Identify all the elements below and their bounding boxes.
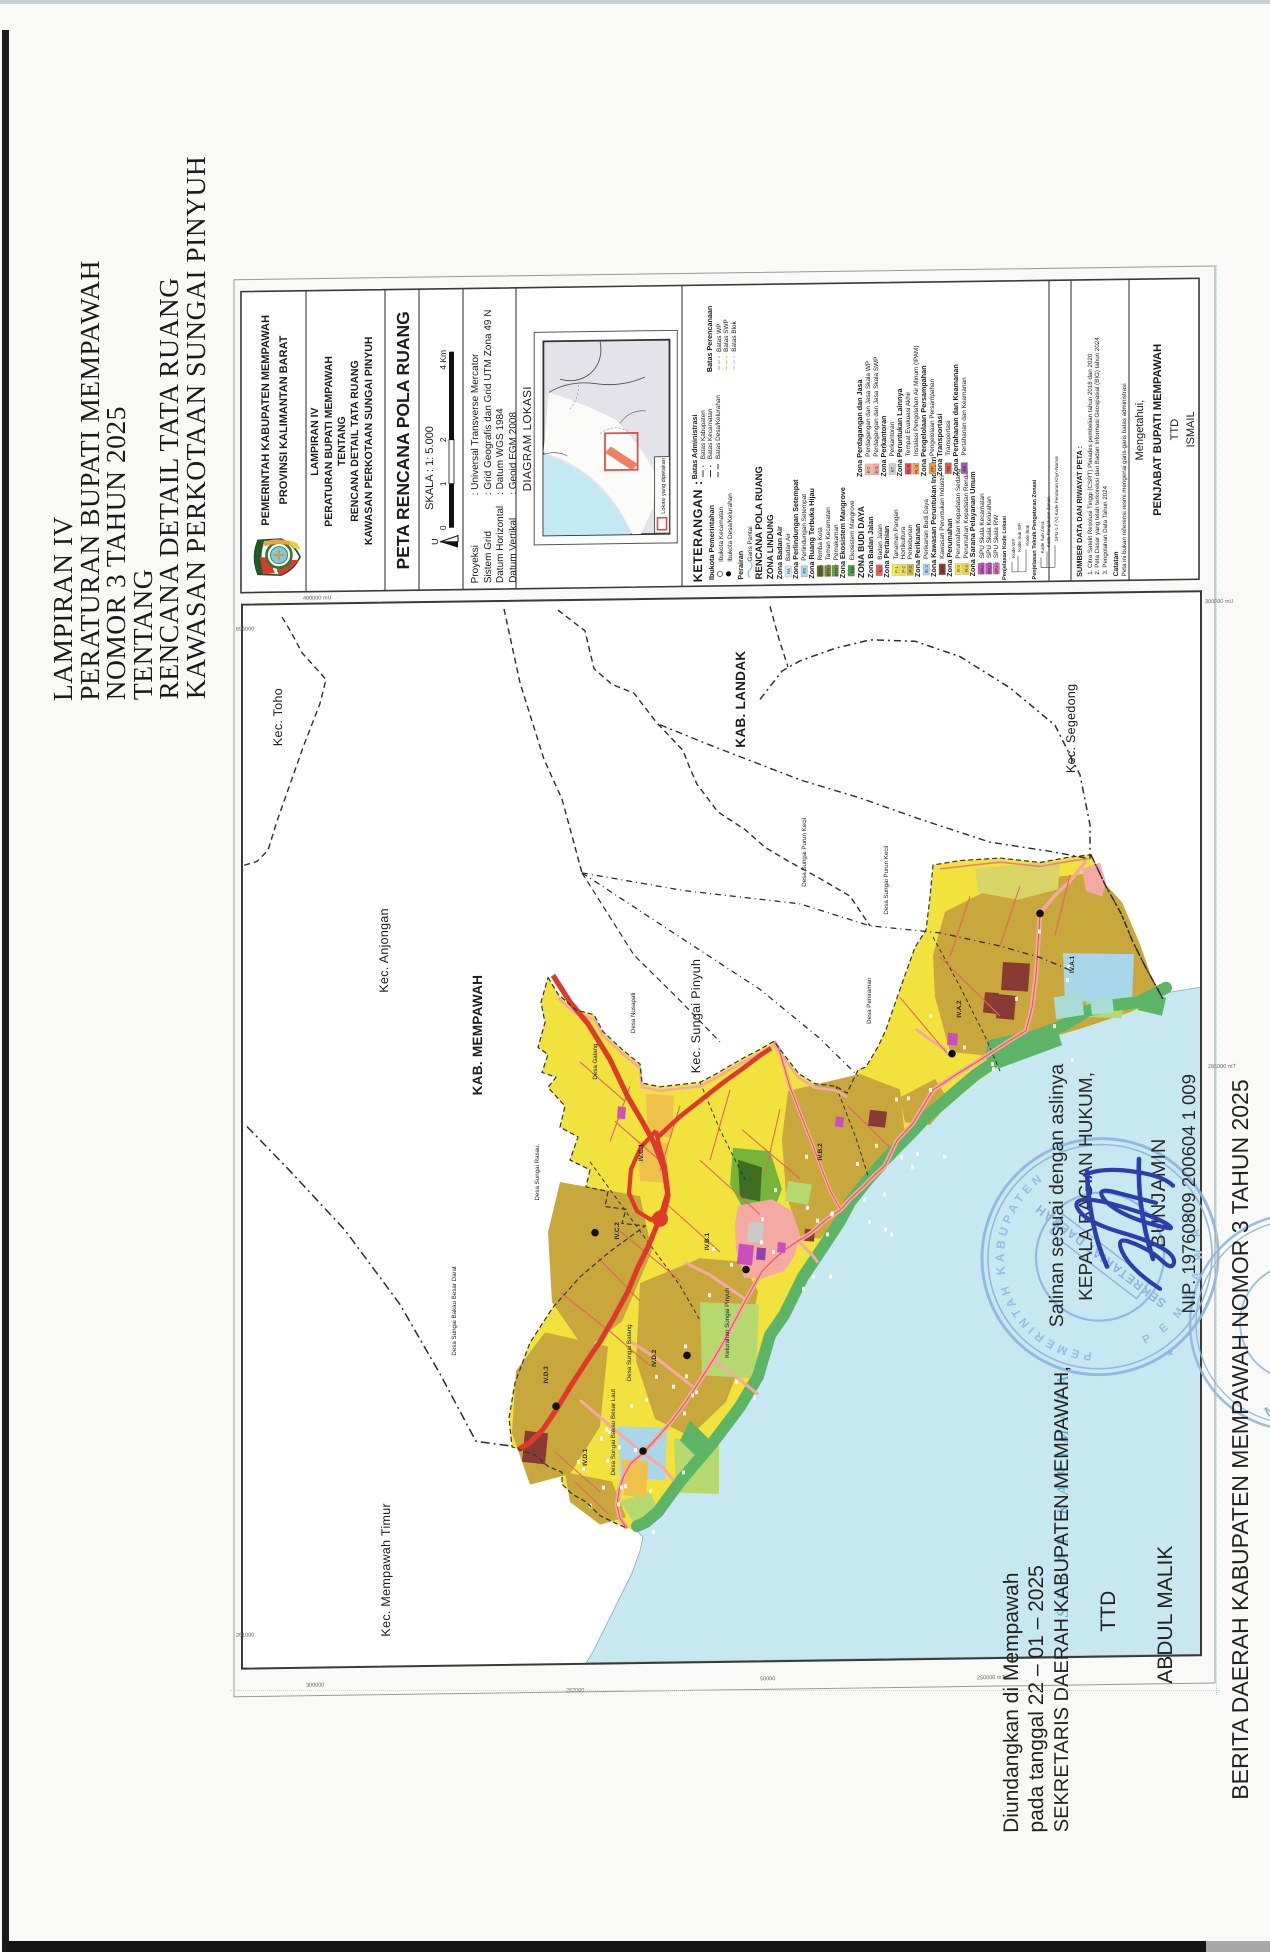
svg-text:Kode WP: Kode WP bbox=[1011, 538, 1016, 557]
svg-text:K-2: K-2 bbox=[866, 466, 871, 473]
svg-text:SPU Skala Kecamatan: SPU Skala Kecamatan bbox=[979, 493, 986, 559]
svg-text:RENCANA POLA RUANG: RENCANA POLA RUANG bbox=[754, 466, 765, 579]
svg-text:Penjelasan Teknik Pengaturan Z: Penjelasan Teknik Pengaturan Zonasi bbox=[1032, 479, 1038, 580]
svg-text:Pertahanan dan Keamanan: Pertahanan dan Keamanan bbox=[961, 377, 968, 456]
svg-text:Kec. Segedong: Kec. Segedong bbox=[1064, 684, 1078, 774]
svg-text:Perdagangan dan Jasa Skala WP: Perdagangan dan Jasa Skala WP bbox=[865, 361, 872, 457]
svg-text:: Datum WGS 1984: : Datum WGS 1984 bbox=[495, 408, 506, 495]
svg-text:Zona Transportasi: Zona Transportasi bbox=[935, 414, 944, 476]
svg-text:R-3: R-3 bbox=[956, 565, 961, 572]
svg-text:Batas Kabupaten: Batas Kabupaten bbox=[700, 410, 707, 460]
svg-text:Desa Peniraman: Desa Peniraman bbox=[866, 977, 873, 1024]
svg-text:261000: 261000 bbox=[236, 1632, 254, 1638]
svg-text:RTH-3: RTH-3 bbox=[826, 564, 831, 577]
svg-text:P-1: P-1 bbox=[894, 566, 899, 573]
svg-text:PL-6: PL-6 bbox=[906, 464, 911, 474]
svg-text:: Geoid EGM 2008: : Geoid EGM 2008 bbox=[508, 411, 519, 494]
svg-text:Batas Administrasi: Batas Administrasi bbox=[690, 414, 699, 479]
svg-text:Zona Pertahanan dan Keamanan: Zona Pertahanan dan Keamanan bbox=[951, 364, 960, 476]
svg-text:KAB. MEMPAWAH: KAB. MEMPAWAH bbox=[470, 975, 485, 1096]
svg-text:U: U bbox=[430, 538, 440, 545]
svg-text:285000 mT: 285000 mT bbox=[1208, 1064, 1236, 1070]
svg-text:PERATURAN BUPATI MEMPAWAH: PERATURAN BUPATI MEMPAWAH bbox=[323, 356, 335, 527]
svg-text:Penjelasan Kode Lokasi: Penjelasan Kode Lokasi bbox=[1002, 515, 1008, 580]
svg-text:SPU-2: SPU-2 bbox=[980, 561, 985, 574]
svg-text:Datum Horizontal: Datum Horizontal bbox=[495, 506, 506, 583]
svg-text:TTD: TTD bbox=[1097, 1591, 1120, 1632]
svg-text:Kode Sub WP: Kode Sub WP bbox=[1017, 523, 1022, 552]
svg-text:Zona Ruang Terbuka Hijau: Zona Ruang Terbuka Hijau bbox=[807, 488, 816, 579]
svg-text:Kec. Mempawah Timur: Kec. Mempawah Timur bbox=[379, 1503, 393, 1637]
svg-text:Garis Pantai: Garis Pantai bbox=[747, 526, 754, 561]
svg-text:PENJABAT BUPATI MEMPAWAH: PENJABAT BUPATI MEMPAWAH bbox=[1152, 344, 1164, 516]
svg-text:PEMERINTAH KABUPATEN MEMPAWAH: PEMERINTAH KABUPATEN MEMPAWAH bbox=[260, 315, 272, 526]
svg-text:Datum Vertikal: Datum Vertikal bbox=[508, 518, 519, 583]
svg-text:2: 2 bbox=[438, 437, 448, 442]
svg-text:Catatan: Catatan bbox=[1113, 551, 1120, 576]
svg-text:Lokasi yang dipetakan: Lokasi yang dipetakan bbox=[661, 458, 667, 514]
svg-text:Zona Badan Air: Zona Badan Air bbox=[775, 526, 784, 579]
svg-text:0: 0 bbox=[438, 525, 448, 530]
svg-text:Desa Sungai Batang: Desa Sungai Batang bbox=[626, 1324, 633, 1381]
svg-text:Taman Kecamatan: Taman Kecamatan bbox=[825, 507, 832, 561]
svg-text:ZONA BUDI DAYA: ZONA BUDI DAYA bbox=[856, 506, 866, 578]
svg-text:MEMPA: MEMPA bbox=[1262, 1372, 1270, 1420]
svg-text:Zona Sarana Pelayanan Umum: Zona Sarana Pelayanan Umum bbox=[968, 471, 977, 576]
svg-text:KAB. LANDAK: KAB. LANDAK bbox=[733, 651, 748, 748]
svg-text:Perairan: Perairan bbox=[736, 551, 745, 580]
svg-text:1: 1 bbox=[438, 481, 448, 486]
svg-text:300000: 300000 bbox=[306, 1682, 324, 1688]
svg-text:Hortikultura: Hortikultura bbox=[900, 526, 907, 559]
svg-text:EM: EM bbox=[850, 566, 855, 573]
svg-text:ZONA LINDUNG: ZONA LINDUNG bbox=[765, 514, 775, 579]
svg-text:PROVINSI KALIMANTAN BARAT: PROVINSI KALIMANTAN BARAT bbox=[278, 335, 290, 504]
svg-text:2. Peta Dasar yang telah terk: 2. Peta Dasar yang telah terkoreksi dari… bbox=[1094, 337, 1101, 575]
svg-text:LAMPIRAN IV: LAMPIRAN IV bbox=[309, 407, 321, 475]
svg-text:Zona Peruntukan Lainnya: Zona Peruntukan Lainnya bbox=[895, 388, 904, 477]
svg-text:4 Km: 4 Km bbox=[438, 350, 448, 370]
svg-text:TTD: TTD bbox=[1169, 419, 1181, 441]
svg-text:Kec. Anjongan: Kec. Anjongan bbox=[377, 908, 391, 993]
svg-text:Ibukota Desa/Kelurahan: Ibukota Desa/Kelurahan bbox=[727, 493, 734, 562]
svg-text:Batas WP: Batas WP bbox=[716, 323, 723, 352]
svg-text:IV.B.2: IV.B.2 bbox=[817, 1143, 824, 1161]
svg-text:50000: 50000 bbox=[760, 1676, 775, 1682]
svg-text:HK: HK bbox=[962, 465, 967, 471]
svg-text:SUMBER DATA DAN RIWAYAT PETA :: SUMBER DATA DAN RIWAYAT PETA : bbox=[1075, 446, 1084, 577]
svg-text:SEKRETARIS DAERAH KABUPATEN ME: SEKRETARIS DAERAH KABUPATEN MEMPAWAH, bbox=[1051, 1366, 1073, 1832]
svg-text:ABDUL MALIK: ABDUL MALIK bbox=[1154, 1545, 1177, 1683]
svg-text:Zona Perlindungan Setempat: Zona Perlindungan Setempat bbox=[791, 479, 800, 579]
svg-text:P-2: P-2 bbox=[901, 565, 906, 572]
svg-text:Desa Sungai Rasau.: Desa Sungai Rasau. bbox=[534, 1143, 541, 1200]
svg-text:3. Pengolahan Data Tahun 2024: 3. Pengolahan Data Tahun 2024 bbox=[1102, 485, 1109, 574]
svg-text:RENCANA DETAIL TATA RUANG: RENCANA DETAIL TATA RUANG bbox=[349, 360, 361, 522]
svg-text:Zona Perdagangan dan Jasa: Zona Perdagangan dan Jasa bbox=[855, 378, 864, 477]
svg-text:Perumahan Kepadatan Sedang: Perumahan Kepadatan Sedang bbox=[955, 469, 962, 559]
svg-text:IV.A.1: IV.A.1 bbox=[1069, 955, 1076, 973]
svg-text:Proyeksi: Proyeksi bbox=[470, 545, 481, 584]
svg-text:Salinan sesuai dengan aslinya: Salinan sesuai dengan aslinya bbox=[1046, 1064, 1068, 1328]
svg-text:Diundangkan di Mempawah: Diundangkan di Mempawah bbox=[1000, 1572, 1023, 1833]
svg-text:IV.D.1: IV.D.1 bbox=[582, 1448, 589, 1466]
svg-text:Desa Galang: Desa Galang bbox=[592, 1043, 599, 1080]
svg-text:400000 mU: 400000 mU bbox=[303, 595, 331, 601]
svg-text:1. Citra Satelit Resolusi Tin: 1. Citra Satelit Resolusi Tinggi (CSRT) … bbox=[1087, 353, 1094, 575]
svg-text:Kode Blok: Kode Blok bbox=[1025, 524, 1030, 546]
svg-text:RTH-1: RTH-1 bbox=[818, 564, 823, 577]
svg-text:IV.C.2: IV.C.2 bbox=[614, 1222, 621, 1240]
svg-text:BERITA DAERAH KABUPATEN MEMPAW: BERITA DAERAH KABUPATEN MEMPAWAH NOMOR 3… bbox=[1227, 1079, 1253, 1800]
svg-text:Kode Pengaturan Zonasi: Kode Pengaturan Zonasi bbox=[1046, 496, 1051, 547]
svg-text:Peta ini bukan referensi resmi: Peta ini bukan referensi resmi mengenai … bbox=[1121, 383, 1128, 576]
svg-text:TENTANG: TENTANG bbox=[336, 416, 348, 466]
svg-text:Tempat Evakuasi Akhir: Tempat Evakuasi Akhir bbox=[905, 391, 912, 457]
svg-text:Kelurahan Sungai Pinyuh: Kelurahan Sungai Pinyuh bbox=[724, 1287, 731, 1357]
svg-text:ISMAIL: ISMAIL bbox=[1185, 411, 1197, 447]
svg-text:IV.A.2: IV.A.2 bbox=[956, 1000, 963, 1018]
svg-text:Zona Pertanian: Zona Pertanian bbox=[882, 526, 891, 578]
svg-text:Zona Perikanan: Zona Perikanan bbox=[913, 524, 922, 578]
svg-text:IV.C.1: IV.C.1 bbox=[638, 1143, 645, 1161]
svg-text:DIAGRAM LOKASI: DIAGRAM LOKASI bbox=[522, 386, 534, 492]
svg-text:SPU Skala Kelurahan: SPU Skala Kelurahan bbox=[986, 496, 993, 558]
svg-text:IV.D.3: IV.D.3 bbox=[543, 1366, 550, 1384]
svg-text:Zona Ekosistem Mangrove: Zona Ekosistem Mangrove bbox=[838, 487, 847, 578]
svg-text:Tanaman Pangan: Tanaman Pangan bbox=[893, 509, 900, 560]
svg-text:Desa Sungai Purun Kecil: Desa Sungai Purun Kecil bbox=[801, 818, 808, 887]
svg-text:Kode Sub Zona: Kode Sub Zona bbox=[1040, 521, 1045, 553]
svg-text:Desa Sungai Purun Kecil: Desa Sungai Purun Kecil bbox=[883, 846, 890, 915]
svg-text:BUNJAMIN: BUNJAMIN bbox=[1148, 1137, 1170, 1248]
svg-text:Batas Kecamatan: Batas Kecamatan bbox=[707, 408, 714, 459]
svg-text:Zona Pengelolaan Persampahan: Zona Pengelolaan Persampahan bbox=[919, 365, 928, 476]
svg-text:*: * bbox=[1165, 1348, 1182, 1355]
svg-text:Kec. Sungai Pinyuh: Kec. Sungai Pinyuh bbox=[689, 959, 703, 1074]
svg-text:Ibukota Kecamatan: Ibukota Kecamatan bbox=[718, 506, 725, 562]
svg-text:300000 mU: 300000 mU bbox=[1205, 599, 1233, 605]
svg-text:Zona Perumahan: Zona Perumahan bbox=[945, 518, 954, 576]
svg-text:SPU-3: SPU-3 bbox=[987, 561, 992, 574]
svg-text:Batas SWP: Batas SWP bbox=[723, 319, 730, 352]
svg-text:SPU-4: SPU-4 bbox=[994, 561, 999, 574]
svg-text:Desa Sungai Bakau Besar Darat: Desa Sungai Bakau Besar Darat bbox=[451, 1266, 458, 1356]
svg-text:Sistem Grid: Sistem Grid bbox=[483, 531, 494, 583]
svg-text:: Grid Geografis dan Grid UTM: : Grid Geografis dan Grid UTM Zona 49 N bbox=[483, 309, 494, 495]
svg-text:: Universal Transverse Mercato: : Universal Transverse Mercator bbox=[470, 353, 481, 496]
svg-text:KAWASAN PERKOTAAN SUNGAI PINYU: KAWASAN PERKOTAAN SUNGAI PINYUH bbox=[363, 336, 375, 545]
svg-text:Kec. Toho: Kec. Toho bbox=[271, 688, 285, 746]
svg-text:SKALA : 1: 5.000: SKALA : 1: 5.000 bbox=[424, 426, 436, 510]
svg-text:Zona Perkantoran: Zona Perkantoran bbox=[879, 415, 888, 476]
svg-text:Batas Blok: Batas Blok bbox=[731, 320, 738, 351]
svg-text:Zona Badan Jalan: Zona Badan Jalan bbox=[866, 516, 875, 578]
svg-text:Batas Desa/Kelurahan: Batas Desa/Kelurahan bbox=[715, 395, 722, 459]
svg-text:NIP. 19760809 200604 1 009: NIP. 19760809 200604 1 009 bbox=[1178, 1074, 1199, 1314]
svg-text:PETA RENCANA POLA RUANG: PETA RENCANA POLA RUANG bbox=[393, 311, 413, 570]
svg-text:KETERANGAN :: KETERANGAN : bbox=[691, 480, 705, 582]
svg-text:pada tanggal 22 – 01 – 2025: pada tanggal 22 – 01 – 2025 bbox=[1025, 1565, 1048, 1833]
svg-text:Ekosistem Mangrove: Ekosistem Mangrove bbox=[849, 500, 856, 560]
svg-text:SPU-1.7 (V) Kode Peraturan Khy: SPU-1.7 (V) Kode Peraturan Khyn-Nomor bbox=[1054, 455, 1059, 541]
svg-text:Desa Nusapati: Desa Nusapati bbox=[630, 993, 637, 1034]
svg-text:IV.B.1: IV.B.1 bbox=[704, 1232, 711, 1250]
svg-text:Desa Sungai Bakau Besar Laut: Desa Sungai Bakau Besar Laut bbox=[610, 1389, 617, 1476]
svg-text:SPU Skala RW: SPU Skala RW bbox=[993, 514, 1000, 558]
svg-text:Batas Perencanaan: Batas Perencanaan bbox=[705, 306, 714, 372]
svg-text:Mengetahui,: Mengetahui, bbox=[1134, 400, 1146, 461]
svg-text:696000: 696000 bbox=[236, 626, 254, 632]
svg-text:IV.D.2: IV.D.2 bbox=[651, 1349, 658, 1367]
svg-text:Ibukota Pemerintahan: Ibukota Pemerintahan bbox=[707, 505, 716, 580]
svg-text:Rimba Kota: Rimba Kota bbox=[817, 527, 824, 561]
